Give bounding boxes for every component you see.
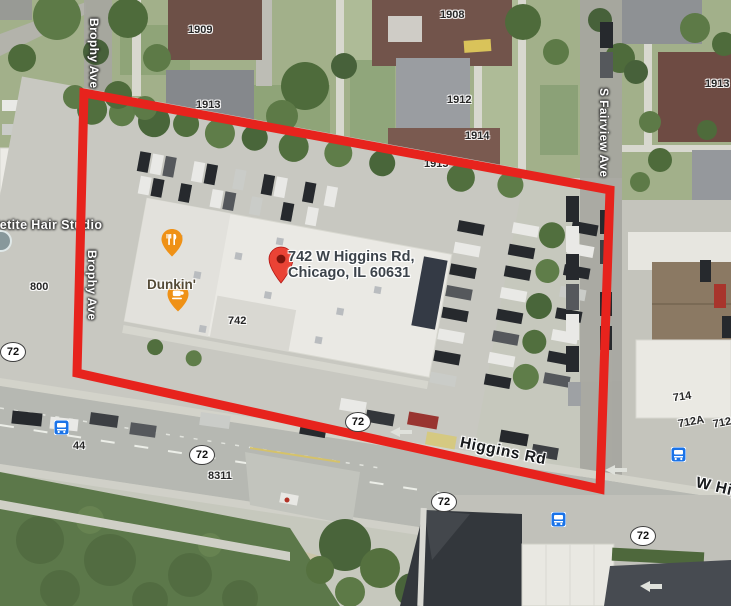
restaurant-pin-icon[interactable] [160,228,184,263]
route-badge-label: 72 [196,449,208,461]
address-line-2: Chicago, IL 60631 [288,266,415,282]
map-viewport[interactable]: Petite Hair Studio Brophy Ave Brophy Ave… [0,0,731,606]
bus-icon[interactable] [551,512,566,527]
route-badge: 72 [630,526,656,546]
route-badge-label: 72 [637,530,649,542]
route-badge: 72 [431,492,457,512]
bus-icon[interactable] [54,420,69,435]
route-badge-label: 72 [7,346,19,358]
route-badge-label: 72 [438,496,450,508]
route-badge-label: 72 [352,416,364,428]
poi-dot-icon[interactable] [0,230,12,252]
address-label: 742 W Higgins Rd, Chicago, IL 60631 [288,250,415,281]
address-line-1: 742 W Higgins Rd, [288,250,415,266]
poi-label-dunkin[interactable]: Dunkin' [147,277,196,292]
route-badge: 72 [0,342,26,362]
markers-layer: 72 72 72 72 72 [0,0,731,606]
bus-icon[interactable] [671,447,686,462]
route-badge: 72 [345,412,371,432]
route-badge: 72 [189,445,215,465]
